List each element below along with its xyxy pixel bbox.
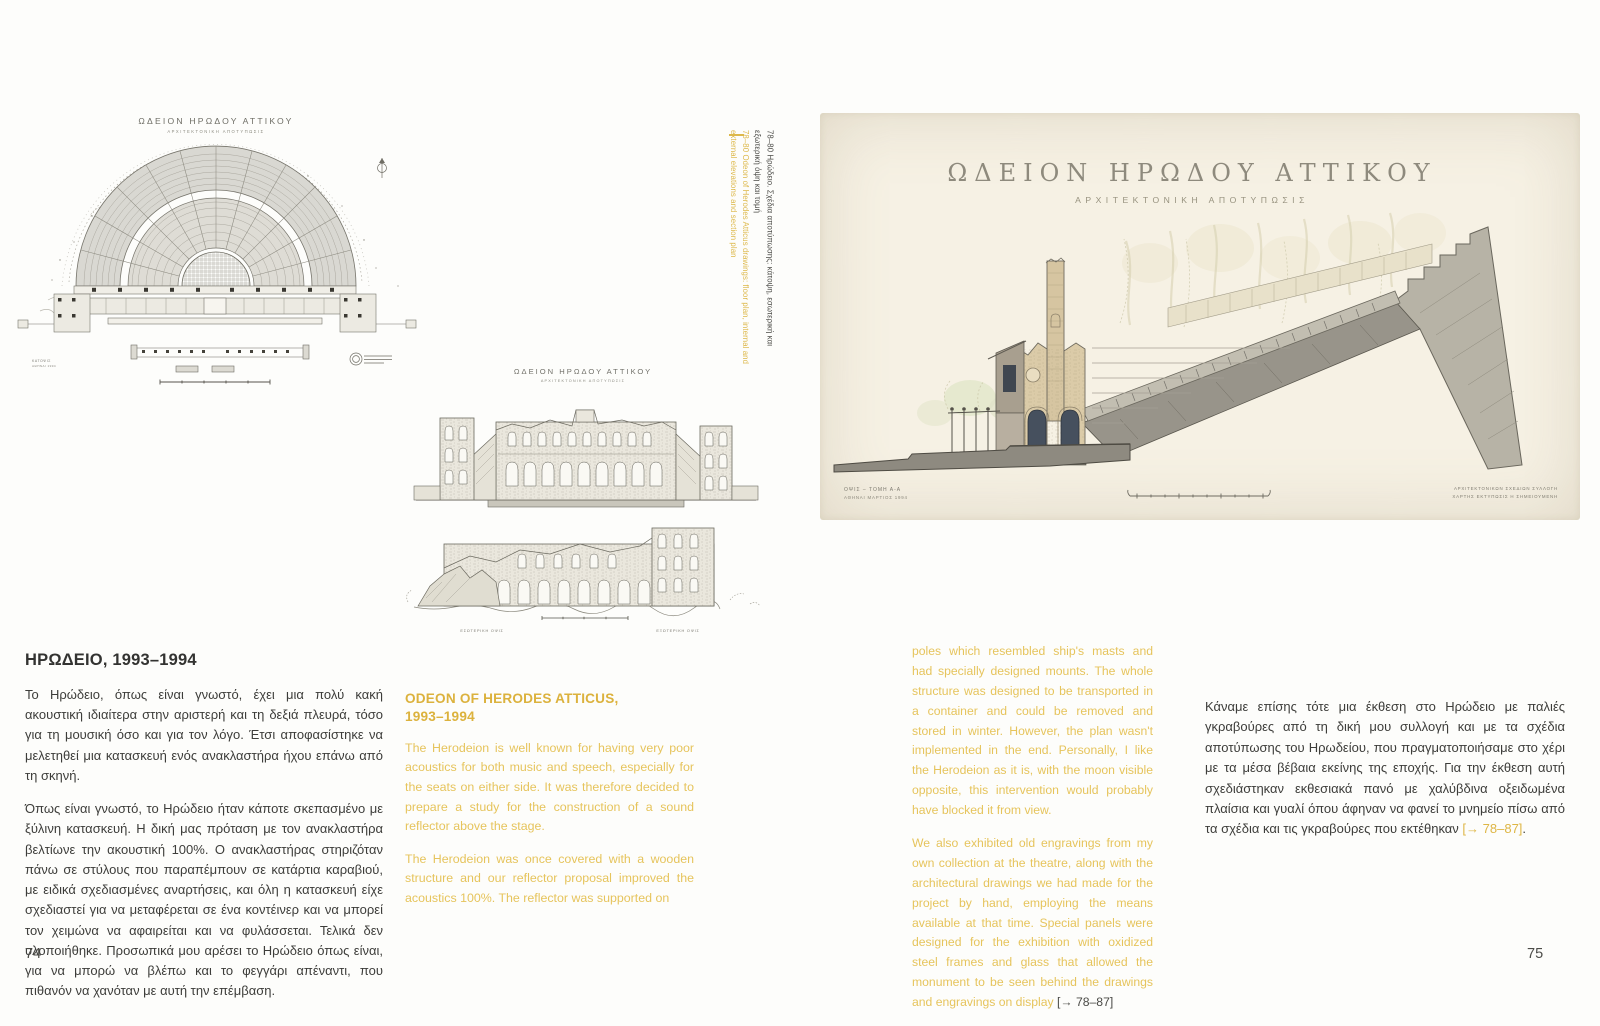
english-paragraph-text: We also exhibited old engravings from my… — [912, 836, 1153, 1009]
elevation-title: ΩΔΕΙΟΝ ΗΡΩΔΟΥ ΑΤΤΙΚΟΥ — [514, 367, 652, 376]
stoa-colonnade — [131, 345, 309, 372]
greek-paragraph: Το Ηρώδειο, όπως είναι γνωστό, έχει μια … — [25, 685, 383, 786]
figure-reference: [→ 78–87] — [1057, 995, 1113, 1009]
odeon-section-drawing-photo: ΩΔΕΙΟΝ ΗΡΩΔΟΥ ΑΤΤΙΚΟΥ ΑΡΧΙΤΕΚΤΟΝΙΚΗ ΑΠΟΤ… — [820, 113, 1580, 520]
external-elevation: ΕΣΩΤΕΡΙΚΗ ΟΨΙΣ ΕΞΩΤΕΡΙΚΗ ΟΨΙΣ — [407, 528, 760, 633]
figure-reference: [→ 78–87] — [1462, 821, 1522, 836]
english-heading-line1: ODEON OF HERODES ATTICUS, — [405, 691, 618, 706]
stage-structures — [18, 286, 416, 332]
english-heading: ODEON OF HERODES ATTICUS, 1993–1994 — [405, 690, 694, 726]
elevation-label-right: ΕΞΩΤΕΡΙΚΗ ΟΨΙΣ — [656, 629, 699, 633]
odeon-section-drawing: ΩΔΕΙΟΝ ΗΡΩΔΟΥ ΑΤΤΙΚΟΥ ΑΡΧΙΤΕΚΤΟΝΙΚΗ ΑΠΟΤ… — [820, 113, 1580, 520]
ground-profile — [834, 444, 1130, 472]
north-compass-icon — [378, 158, 387, 178]
figure-caption-vertical: 78–80 Ηρώδειο. Σχέδια αποτύπωσης: κάτοψη… — [727, 130, 775, 382]
plan-corner-note-1: ΚΑΤΟΨΙΣ — [32, 359, 51, 363]
section-scale-bar — [1128, 490, 1271, 499]
plan-subtitle: ΑΡΧΙΤΕΚΤΟΝΙΚΗ ΑΠΟΤΥΠΩΣΙΣ — [167, 129, 264, 134]
greek-continuation-column: Κάναμε επίσης τότε μια έκθεση στο Ηρώδει… — [1205, 697, 1565, 853]
odeon-floor-plan-drawing: ΩΔΕΙΟΝ ΗΡΩΔΟΥ ΑΤΤΙΚΟΥ ΑΡΧΙΤΕΚΤΟΝΙΚΗ ΑΠΟΤ… — [8, 110, 440, 402]
page-number-left: 74 — [25, 946, 41, 962]
english-paragraph: The Herodeion is well known for having v… — [405, 739, 694, 837]
greek-paragraph-text: Κάναμε επίσης τότε μια έκθεση στο Ηρώδει… — [1205, 699, 1565, 836]
plan-corner-note-2: ΑΘΗΝΑΙ 1994 — [32, 364, 56, 368]
section-caption-right-2: ΧΑΡΤΗΣ ΕΚΤΥΠΩΣΙΣ Η ΣΗΜΕΙΟΥΜΕΝΗ — [1452, 494, 1558, 499]
english-continuation-column: poles which resembled ship's masts and h… — [912, 642, 1153, 1026]
page-number-right: 75 — [1527, 946, 1543, 962]
greek-heading: ΗΡΩΔΕΙΟ, 1993–1994 — [25, 648, 383, 674]
elevation-subtitle: ΑΡΧΙΤΕΚΤΟΝΙΚΗ ΑΠΟΤΥΠΩΣΙΣ — [541, 379, 625, 383]
elevation-label-left: ΕΣΩΤΕΡΙΚΗ ΟΨΙΣ — [460, 629, 503, 633]
english-paragraph: poles which resembled ship's masts and h… — [912, 642, 1153, 821]
figure-caption-greek: 78–80 Ηρώδειο. Σχέδια αποτύπωσης: κάτοψη… — [751, 130, 775, 382]
english-text-column: ODEON OF HERODES ATTICUS, 1993–1994 The … — [405, 690, 694, 922]
greek-text-column: ΗΡΩΔΕΙΟ, 1993–1994 Το Ηρώδειο, όπως είνα… — [25, 648, 383, 1015]
greek-paragraph: Κάναμε επίσης τότε μια έκθεση στο Ηρώδει… — [1205, 697, 1565, 840]
orchestra-floor — [182, 252, 250, 286]
english-paragraph: The Herodeion was once covered with a wo… — [405, 850, 694, 909]
greek-paragraph: Όπως είναι γνωστό, το Ηρώδειο ήταν κάποτ… — [25, 799, 383, 1002]
odeon-elevations-drawing: ΩΔΕΙΟΝ ΗΡΩΔΟΥ ΑΤΤΙΚΟΥ ΑΡΧΙΤΕΚΤΟΝΙΚΗ ΑΠΟΤ… — [400, 358, 770, 643]
section-caption-left-1: ΟΨΙΣ – ΤΟΜΗ Α-Α — [844, 487, 901, 493]
greek-paragraph-end: . — [1522, 821, 1526, 836]
section-subtitle: ΑΡΧΙΤΕΚΤΟΝΙΚΗ ΑΠΟΤΥΠΩΣΙΣ — [1075, 195, 1309, 205]
english-paragraph: We also exhibited old engravings from my… — [912, 834, 1153, 1013]
plan-scale-bar — [160, 380, 270, 385]
plan-title: ΩΔΕΙΟΝ ΗΡΩΔΟΥ ΑΤΤΙΚΟΥ — [138, 116, 293, 126]
english-heading-line2: 1993–1994 — [405, 709, 475, 724]
section-caption-left-2: ΑΘΗΝΑΙ ΜΑΡΤΙΟΣ 1994 — [844, 495, 908, 500]
plan-stamp — [350, 353, 392, 365]
section-title: ΩΔΕΙΟΝ ΗΡΩΔΟΥ ΑΤΤΙΚΟΥ — [947, 159, 1436, 187]
figure-caption-english: 78–80 Odeon of Herodes Atticus drawings:… — [727, 130, 751, 382]
cavea-substructure — [1082, 301, 1420, 457]
internal-elevation — [414, 410, 758, 507]
section-caption-right-1: ΑΡΧΙΤΕΚΤΟΝΙΚΩΝ ΣΧΕΔΙΩΝ ΣΥΛΛΟΓΗ — [1454, 486, 1558, 491]
